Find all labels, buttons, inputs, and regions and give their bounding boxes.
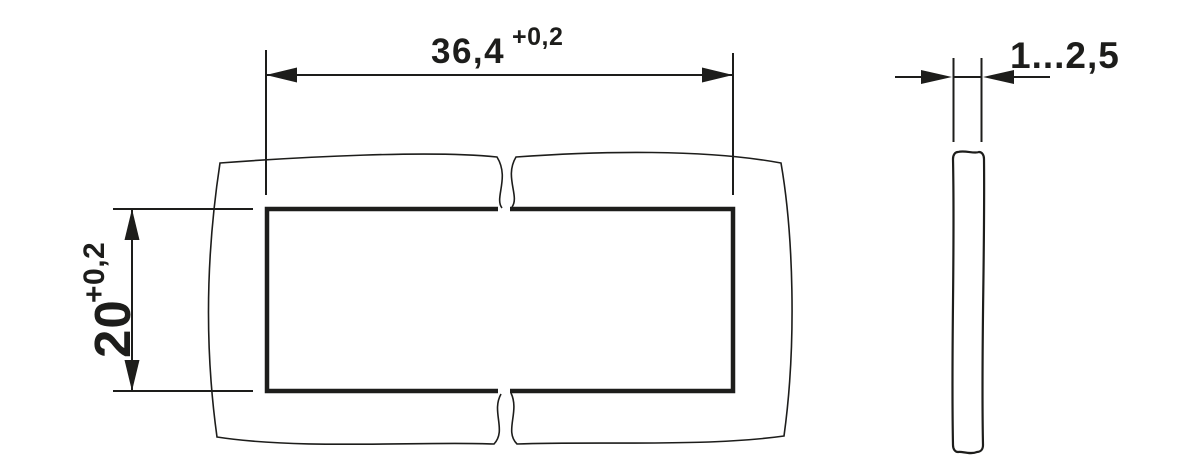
width-arrowhead-right [702,68,733,83]
thickness-dimension-value: 1...2,5 [1010,35,1120,76]
width-dimension [266,50,733,195]
front-view [209,152,793,444]
height-dimension-tolerance: +0,2 [78,242,111,303]
panel-side-profile [952,151,984,453]
width-dimension-value: 36,4 [431,32,505,71]
width-arrowhead-left [266,68,297,83]
height-arrowhead-bottom [125,360,140,391]
dimension-drawing-canvas: 36,4 +0,2 20 +0,2 1...2,5 [0,0,1200,469]
side-view [952,151,984,453]
thickness-arrowhead-left [921,70,952,84]
panel-cutout-dimension-drawing: 36,4 +0,2 20 +0,2 1...2,5 [0,0,1200,469]
cutout-rectangle-left [267,209,498,391]
cutout-rectangle-right [510,209,733,391]
height-arrowhead-top [125,209,140,240]
panel-outline-left [209,154,503,444]
panel-outline-right [511,152,792,444]
height-dimension-value: 20 [84,299,141,358]
width-dimension-tolerance: +0,2 [512,23,563,51]
